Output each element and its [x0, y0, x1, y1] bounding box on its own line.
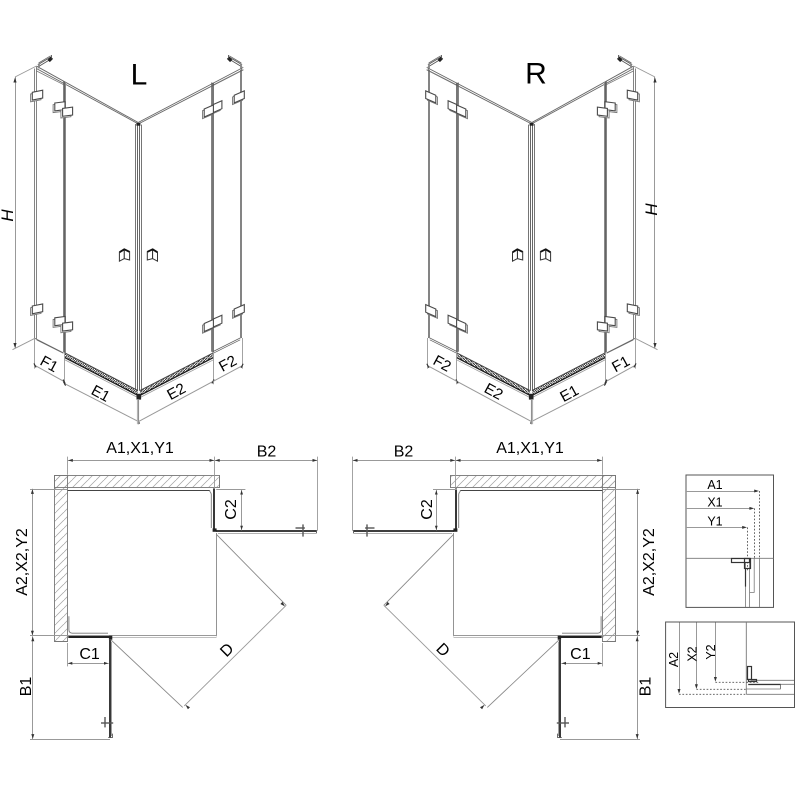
svg-text:A2,X2,Y2: A2,X2,Y2 — [14, 528, 31, 596]
svg-text:Y2: Y2 — [704, 644, 718, 659]
svg-text:A2,X2,Y2: A2,X2,Y2 — [641, 528, 658, 596]
svg-text:R: R — [525, 58, 547, 91]
svg-text:A1,X1,Y1: A1,X1,Y1 — [496, 440, 564, 457]
svg-text:B1: B1 — [18, 677, 35, 697]
svg-text:A1: A1 — [707, 478, 722, 492]
svg-text:C1: C1 — [79, 646, 100, 663]
svg-text:A1,X1,Y1: A1,X1,Y1 — [106, 440, 174, 457]
svg-text:B1: B1 — [638, 677, 655, 697]
svg-text:C1: C1 — [570, 646, 591, 663]
svg-text:B2: B2 — [394, 444, 414, 461]
svg-text:C2: C2 — [223, 499, 240, 520]
svg-text:H: H — [642, 203, 661, 216]
svg-text:H: H — [0, 209, 17, 222]
svg-text:A2: A2 — [667, 652, 681, 667]
svg-text:B2: B2 — [257, 444, 277, 461]
svg-text:X1: X1 — [707, 496, 722, 510]
svg-text:C2: C2 — [419, 499, 436, 520]
svg-text:X2: X2 — [686, 646, 700, 661]
svg-text:L: L — [131, 59, 148, 92]
svg-text:Y1: Y1 — [707, 515, 722, 529]
